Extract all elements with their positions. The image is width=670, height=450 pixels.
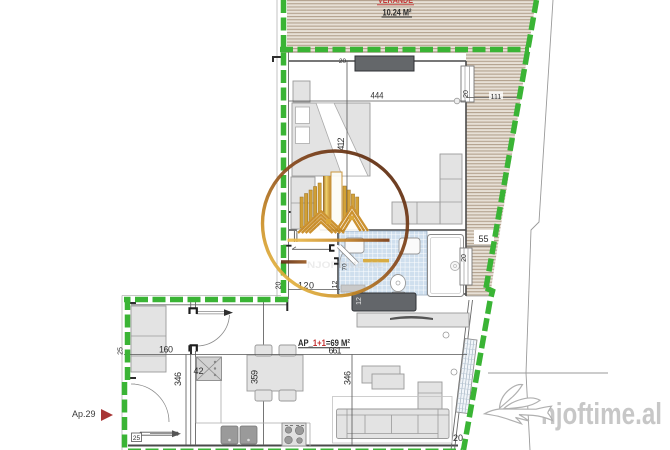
svg-text:20: 20: [453, 433, 463, 443]
svg-text:20: 20: [463, 90, 470, 98]
svg-text:359: 359: [250, 370, 260, 384]
svg-text:12: 12: [332, 281, 339, 289]
svg-text:55: 55: [478, 234, 488, 244]
svg-text:NJOFTIME.AL: NJOFTIME.AL: [307, 260, 384, 270]
svg-text:160: 160: [159, 345, 173, 355]
svg-text:444: 444: [371, 91, 384, 101]
svg-text:346: 346: [173, 372, 183, 386]
svg-text:111: 111: [491, 94, 502, 101]
svg-text:12: 12: [356, 297, 363, 305]
svg-text:42: 42: [194, 366, 204, 376]
svg-text:25: 25: [133, 435, 141, 442]
svg-text:Ap.29: Ap.29: [72, 409, 96, 419]
svg-text:346: 346: [343, 371, 353, 385]
svg-text:20: 20: [339, 58, 347, 65]
svg-text:njoftime.al: njoftime.al: [541, 396, 662, 431]
svg-text:20: 20: [461, 254, 468, 262]
svg-text:25: 25: [118, 347, 125, 355]
svg-text:412: 412: [336, 138, 346, 151]
